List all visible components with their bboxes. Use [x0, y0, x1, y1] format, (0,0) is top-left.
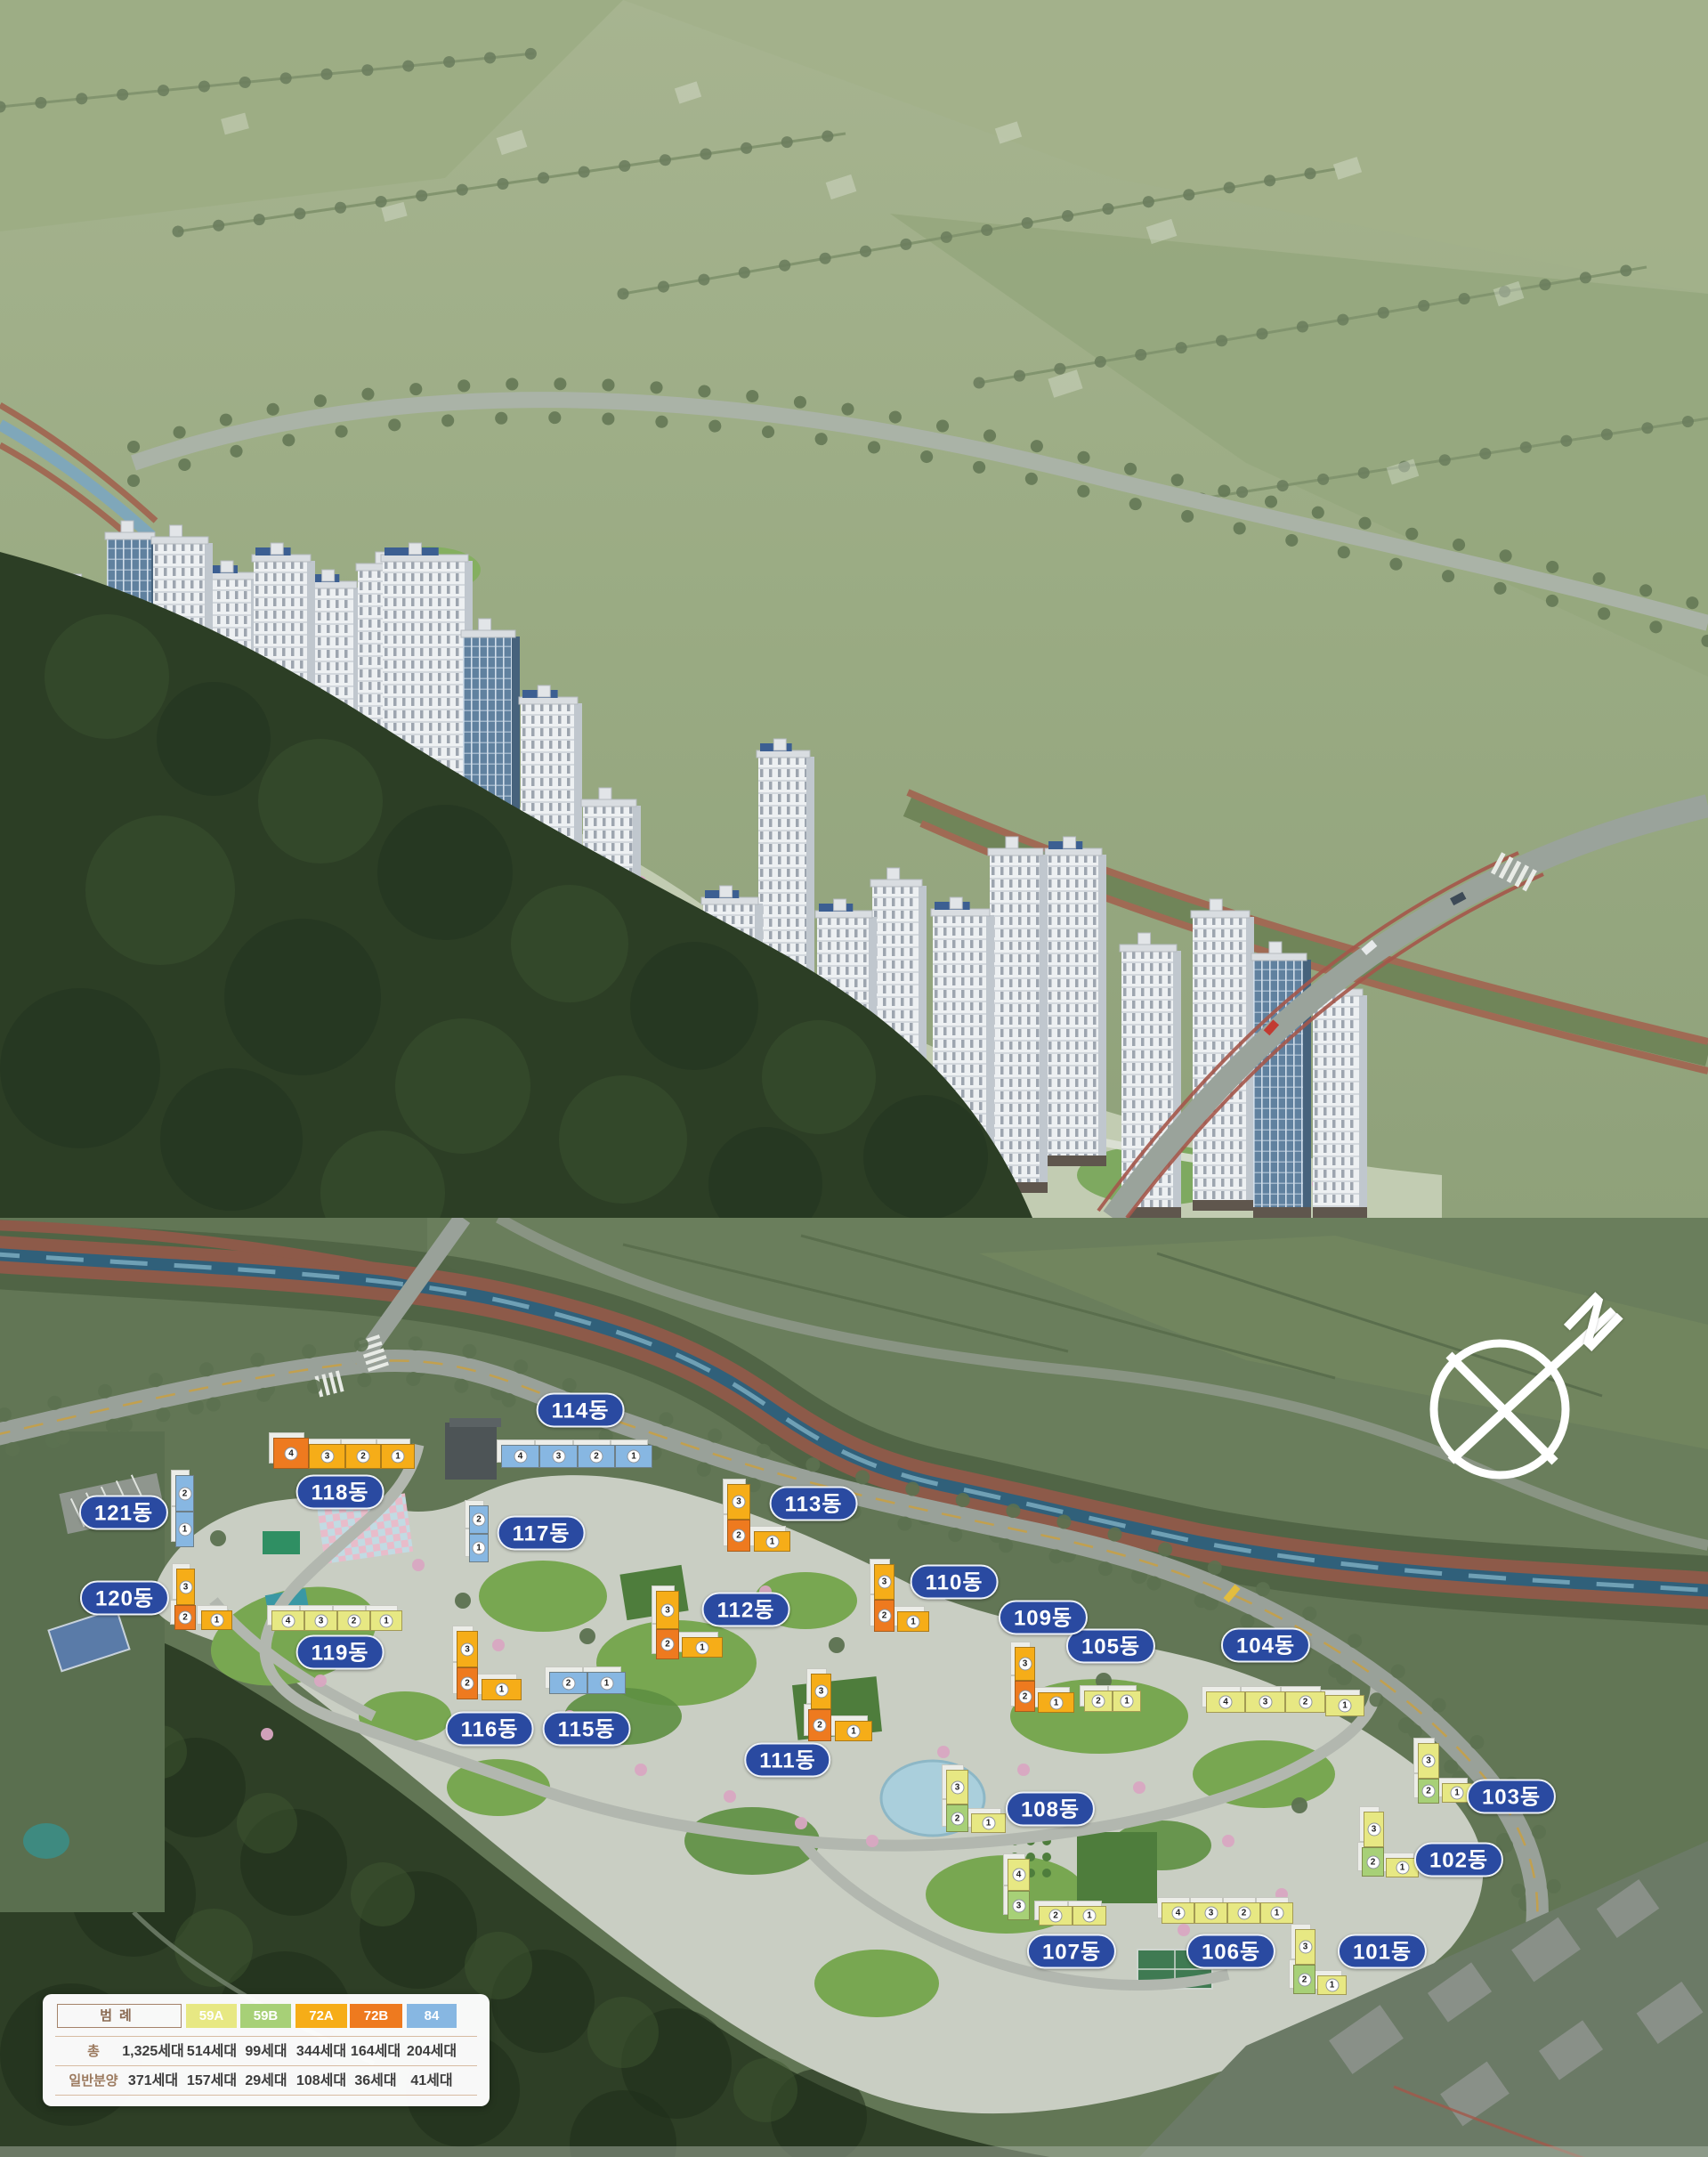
legend-value-r0-c0: 1,325세대: [122, 2040, 183, 2064]
building-107-line-2-59A: 2: [1039, 1906, 1073, 1926]
building-108-line-1-59A: 1: [971, 1813, 1006, 1833]
legend-row-label-0: 총: [87, 2040, 100, 2064]
line-number-badge: 3: [314, 1614, 328, 1627]
legend-value-r1-c2: 29세대: [245, 2070, 287, 2093]
line-number-badge: 3: [661, 1603, 675, 1617]
line-number-badge: 1: [1451, 1787, 1464, 1800]
building-114-line-2-84: 2: [578, 1445, 615, 1468]
line-number-badge: 4: [285, 1447, 298, 1460]
line-number-badge: 2: [473, 1513, 486, 1527]
line-number-badge: 1: [600, 1676, 613, 1690]
line-number-badge: 2: [347, 1614, 360, 1627]
building-117-line-1-84: 1: [469, 1534, 489, 1562]
tower: [1251, 942, 1311, 1218]
promo-image: 3213213214321214321432132132132132132132…: [0, 0, 1708, 2157]
building-114-line-1-84: 1: [615, 1445, 652, 1468]
building-104-line-4-59A: 4: [1206, 1691, 1245, 1713]
building-101-line-2-59B: 2: [1293, 1965, 1315, 1994]
legend-value-r0-c2: 99세대: [245, 2040, 287, 2064]
building-107-line-1-59A: 1: [1073, 1906, 1106, 1926]
legend-swatch-72A: 72A: [295, 2004, 347, 2028]
building-107-line-4-59A: 4: [1008, 1859, 1030, 1891]
building-116-line-1-72A: 1: [482, 1679, 522, 1700]
legend-value-r0-c5: 204세대: [407, 2040, 457, 2064]
line-number-badge: 3: [1367, 1823, 1380, 1837]
legend-value-r1-c3: 108세대: [296, 2070, 346, 2093]
line-number-badge: 3: [179, 1580, 192, 1593]
building-label-113: 113동: [770, 1487, 858, 1521]
legend-value-r0-c1: 514세대: [187, 2040, 237, 2064]
line-number-badge: 3: [461, 1642, 474, 1656]
line-number-badge: 1: [1325, 1979, 1339, 1992]
building-label-117: 117동: [498, 1516, 586, 1551]
line-number-badge: 1: [380, 1614, 393, 1627]
building-112-line-3-72A: 3: [656, 1591, 679, 1629]
legend-swatch-84: 84: [407, 2004, 457, 2028]
building-109-line-1-72A: 1: [1038, 1692, 1074, 1713]
building-103-line-2-59B: 2: [1418, 1779, 1439, 1804]
building-113-line-3-72A: 3: [727, 1484, 750, 1520]
building-110-line-1-72A: 1: [897, 1611, 929, 1632]
line-number-badge: 2: [1422, 1785, 1436, 1798]
line-number-badge: 2: [461, 1677, 474, 1691]
line-number-badge: 4: [514, 1450, 527, 1464]
line-number-badge: 1: [627, 1450, 641, 1464]
line-number-badge: 2: [951, 1812, 964, 1825]
building-label-120: 120동: [80, 1581, 169, 1616]
line-number-badge: 1: [907, 1615, 920, 1628]
line-number-badge: 2: [878, 1610, 891, 1623]
line-number-badge: 4: [281, 1614, 295, 1627]
building-label-102: 102동: [1414, 1843, 1503, 1877]
line-number-badge: 3: [552, 1450, 565, 1464]
building-label-115: 115동: [543, 1712, 631, 1747]
tower: [1045, 837, 1106, 1166]
legend-value-r1-c5: 41세대: [410, 2070, 452, 2093]
line-number-badge: 1: [1270, 1907, 1283, 1920]
legend-title: 범례: [100, 2008, 139, 2023]
line-number-badge: 2: [562, 1676, 575, 1690]
building-112-line-2-72B: 2: [656, 1629, 679, 1659]
building-115-line-1-84: 1: [587, 1672, 626, 1694]
building-label-103: 103동: [1467, 1780, 1556, 1814]
building-label-119: 119동: [296, 1635, 385, 1670]
building-label-101: 101동: [1338, 1934, 1427, 1969]
line-number-badge: 4: [1012, 1869, 1025, 1882]
building-label-110: 110동: [911, 1565, 999, 1600]
building-105-line-1-59A: 1: [1113, 1691, 1141, 1712]
building-106-line-2-59A: 2: [1227, 1902, 1260, 1924]
building-107-line-3-59B: 3: [1008, 1891, 1030, 1920]
building-116-line-2-72B: 2: [457, 1667, 478, 1699]
legend-value-r1-c0: 371세대: [128, 2070, 178, 2093]
building-label-118: 118동: [296, 1475, 385, 1510]
legend-card: 범례 59A59B72A72B84 총1,325세대514세대99세대344세대…: [43, 1994, 490, 2106]
building-108-line-2-59B: 2: [946, 1804, 968, 1832]
line-number-badge: 2: [1018, 1690, 1032, 1703]
building-121-line-2-84: 2: [175, 1475, 194, 1512]
line-number-badge: 3: [1018, 1658, 1032, 1671]
line-number-badge: 2: [1299, 1696, 1312, 1709]
line-number-badge: 1: [210, 1614, 223, 1627]
building-113-line-2-72B: 2: [727, 1520, 750, 1552]
building-106-line-3-59A: 3: [1194, 1902, 1227, 1924]
building-121-line-1-84: 1: [175, 1512, 194, 1547]
building-111-line-3-72A: 3: [811, 1674, 831, 1709]
line-number-badge: 3: [1204, 1907, 1218, 1920]
compass: N: [1411, 1287, 1642, 1492]
building-118-line-2-72A: 2: [345, 1444, 381, 1469]
building-label-121: 121동: [79, 1496, 168, 1530]
line-number-badge: 1: [1049, 1696, 1063, 1709]
legend-swatch-72B: 72B: [350, 2004, 402, 2028]
building-label-112: 112동: [702, 1593, 790, 1627]
line-number-badge: 3: [320, 1450, 334, 1464]
line-number-badge: 1: [473, 1542, 486, 1555]
building-118-line-3-72A: 3: [309, 1444, 345, 1469]
building-109-line-3-72A: 3: [1015, 1647, 1035, 1681]
line-number-badge: 4: [1171, 1907, 1185, 1920]
line-number-badge: 3: [814, 1685, 828, 1699]
line-number-badge: 1: [982, 1817, 995, 1830]
line-number-badge: 1: [765, 1535, 779, 1548]
building-118-line-1-72A: 1: [381, 1444, 415, 1469]
building-105-line-2-59A: 2: [1084, 1691, 1113, 1712]
line-number-badge: 2: [661, 1638, 675, 1651]
line-number-badge: 2: [1366, 1855, 1380, 1869]
building-label-107: 107동: [1027, 1934, 1116, 1969]
building-119-line-3-59A: 3: [304, 1610, 337, 1631]
building-103-line-3-59A: 3: [1418, 1743, 1439, 1779]
building-110-line-3-72A: 3: [874, 1564, 894, 1600]
line-number-badge: 2: [1237, 1907, 1251, 1920]
building-label-109: 109동: [999, 1601, 1088, 1635]
line-number-badge: 1: [696, 1641, 709, 1654]
legend-value-r0-c4: 164세대: [351, 2040, 401, 2064]
building-102-line-2-59B: 2: [1362, 1847, 1384, 1877]
building-110-line-2-72B: 2: [874, 1600, 894, 1632]
line-number-badge: 1: [1396, 1861, 1409, 1875]
building-label-105: 105동: [1066, 1629, 1155, 1664]
building-119-line-2-59A: 2: [337, 1610, 370, 1631]
building-label-116: 116동: [446, 1712, 534, 1747]
line-number-badge: 1: [1083, 1910, 1097, 1923]
aerial-rendering: [0, 0, 1708, 1218]
line-number-badge: 2: [1049, 1910, 1063, 1923]
building-119-line-4-59A: 4: [271, 1610, 304, 1631]
line-number-badge: 3: [733, 1496, 746, 1509]
building-117-line-2-84: 2: [469, 1505, 489, 1534]
building-120-line-3-72A: 3: [176, 1569, 195, 1605]
line-number-badge: 3: [951, 1780, 964, 1794]
building-112-line-1-72A: 1: [682, 1637, 723, 1658]
building-113-line-1-72A: 1: [754, 1531, 790, 1552]
building-119-line-1-59A: 1: [370, 1610, 402, 1631]
building-106-line-4-59A: 4: [1162, 1902, 1194, 1924]
line-number-badge: 1: [392, 1450, 405, 1464]
building-114-line-3-84: 3: [539, 1445, 578, 1468]
line-number-badge: 3: [1259, 1696, 1272, 1709]
building-106-line-1-59A: 1: [1260, 1902, 1293, 1924]
building-104-line-2-59A: 2: [1285, 1691, 1325, 1713]
building-111-line-1-72A: 1: [835, 1721, 872, 1741]
line-number-badge: 3: [1422, 1755, 1436, 1768]
line-number-badge: 4: [1219, 1696, 1233, 1709]
building-104-line-1-59A: 1: [1325, 1695, 1364, 1716]
building-111-line-2-72B: 2: [808, 1709, 831, 1741]
line-number-badge: 2: [179, 1611, 192, 1625]
line-number-badge: 3: [1012, 1899, 1025, 1912]
building-115-line-2-84: 2: [549, 1672, 587, 1694]
legend-value-r0-c3: 344세대: [296, 2040, 346, 2064]
line-number-badge: 2: [733, 1529, 746, 1543]
building-104-line-3-59A: 3: [1245, 1691, 1285, 1713]
building-116-line-3-72A: 3: [457, 1631, 478, 1667]
building-108-line-3-59A: 3: [946, 1770, 968, 1804]
legend-row-label-1: 일반분양: [69, 2070, 117, 2093]
line-number-badge: 1: [847, 1724, 861, 1738]
line-number-badge: 2: [1092, 1695, 1105, 1708]
building-101-line-1-59A: 1: [1317, 1975, 1347, 1995]
legend-title-box: 범례: [57, 2004, 182, 2028]
building-label-106: 106동: [1186, 1934, 1275, 1969]
line-number-badge: 3: [878, 1576, 891, 1589]
building-101-line-3-59A: 3: [1295, 1929, 1315, 1965]
line-number-badge: 2: [590, 1450, 603, 1464]
line-number-badge: 3: [1299, 1941, 1312, 1954]
building-120-line-1-72A: 1: [201, 1610, 232, 1630]
line-number-badge: 2: [814, 1719, 827, 1732]
building-102-line-3-59A: 3: [1364, 1812, 1384, 1847]
line-number-badge: 1: [1121, 1695, 1134, 1708]
building-label-111: 111동: [744, 1743, 830, 1778]
building-114-line-4-84: 4: [501, 1445, 539, 1468]
building-label-104: 104동: [1221, 1628, 1310, 1663]
line-number-badge: 2: [1298, 1973, 1311, 1986]
building-109-line-2-72B: 2: [1015, 1681, 1035, 1712]
building-118-line-4-72B: 4: [273, 1438, 309, 1469]
plan-overlay: 3213213214321214321432132132132132132132…: [0, 1218, 1708, 2157]
building-120-line-2-72B: 2: [174, 1605, 196, 1630]
line-number-badge: 2: [178, 1487, 191, 1500]
legend-value-r1-c4: 36세대: [354, 2070, 396, 2093]
tower: [988, 837, 1048, 1193]
legend-swatch-59A: 59A: [186, 2004, 237, 2028]
building-label-114: 114동: [537, 1393, 625, 1428]
line-number-badge: 1: [178, 1523, 191, 1537]
building-label-108: 108동: [1006, 1792, 1095, 1827]
line-number-badge: 1: [1339, 1699, 1352, 1713]
line-number-badge: 2: [357, 1450, 370, 1464]
legend-swatch-59B: 59B: [240, 2004, 291, 2028]
legend-value-r1-c1: 157세대: [187, 2070, 237, 2093]
line-number-badge: 1: [495, 1683, 508, 1697]
